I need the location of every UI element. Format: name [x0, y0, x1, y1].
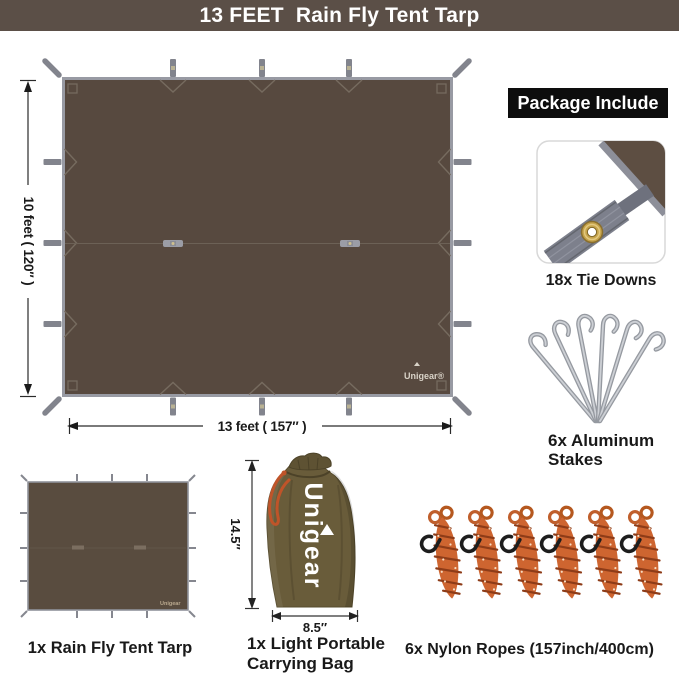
bag-item-label: 1x Light Portable Carrying Bag — [247, 634, 422, 673]
tarp-item-label: 1x Rain Fly Tent Tarp — [12, 639, 208, 658]
tarp-fabric — [64, 79, 452, 396]
tie-downs-label: 18x Tie Downs — [531, 272, 671, 290]
tarp-diagram: Unigear® 10 feet ( 120″ ) 13 feet ( 157″… — [0, 0, 480, 455]
rope-coil — [497, 506, 544, 601]
arrowhead-left — [67, 422, 78, 430]
stakes-image — [505, 296, 679, 433]
stakes-label: 6x Aluminum Stakes — [548, 431, 678, 469]
arrowhead-up — [24, 81, 32, 92]
tarp-brand-text: Unigear® — [404, 371, 445, 381]
bag-drawstring-top — [289, 453, 331, 470]
thumbnail-brand-text: Unigear — [160, 601, 181, 607]
bag-width-label: 8.5″ — [303, 620, 327, 635]
arrowhead-down — [24, 384, 32, 395]
bag-height-dimension — [245, 461, 259, 609]
arrowhead-right — [442, 422, 453, 430]
rope-coil — [537, 506, 584, 601]
tie-downs-photo — [533, 136, 669, 268]
product-infographic: 13 FEET Rain Fly Tent Tarp — [0, 0, 679, 674]
rope-coil — [457, 506, 504, 601]
bag-height-label: 14.5″ — [228, 518, 243, 550]
bag-brand-text: Unigear — [299, 482, 327, 589]
rope-coil — [577, 506, 624, 601]
ropes-image — [408, 496, 679, 622]
height-dimension-label: 10 feet ( 120″ ) — [21, 197, 36, 286]
rope-coil — [617, 506, 664, 601]
carry-bag-image: Unigear 14.5″ 8.5″ — [226, 450, 414, 640]
tarp-thumbnail: Unigear — [12, 464, 208, 626]
rope-coil — [417, 506, 464, 601]
ropes-label: 6x Nylon Ropes (157inch/400cm) — [405, 641, 654, 659]
width-dimension-label: 13 feet ( 157″ ) — [218, 419, 307, 434]
package-include-header: Package Include — [508, 88, 668, 118]
